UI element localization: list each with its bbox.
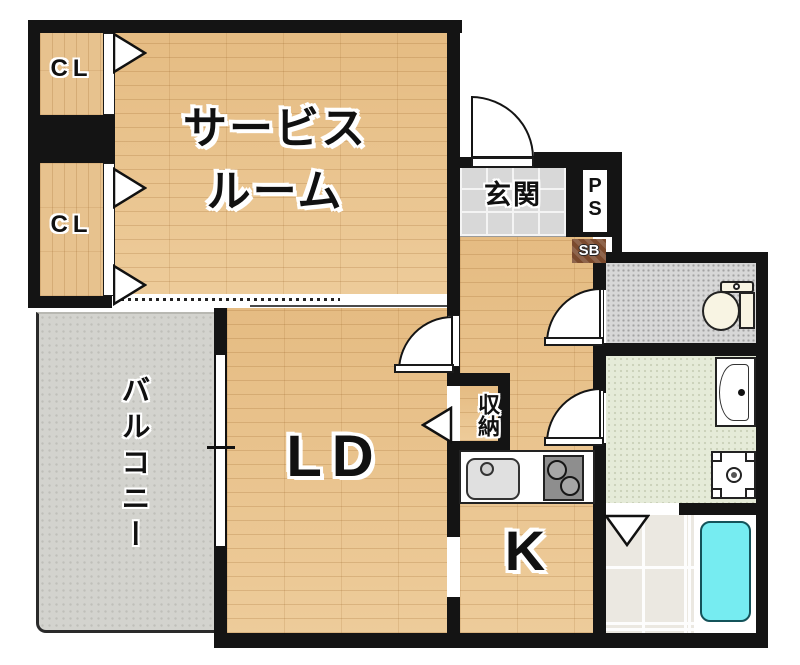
pipe-space-label-s: S (583, 198, 607, 221)
ld-label: LD (250, 425, 420, 489)
bathroom-door-triangle-icon (604, 514, 650, 548)
wall-hall-east-1 (593, 263, 606, 290)
kitchen-faucet-icon (480, 462, 494, 476)
pipe-space-label-p: P (583, 175, 607, 198)
kitchen-label: K (465, 520, 585, 582)
closet-top-label: CL (40, 56, 103, 82)
bathtub (700, 521, 751, 622)
partition-solid-line (250, 305, 447, 307)
wall-closet-cap (28, 296, 112, 308)
closet-bottom-label: CL (40, 212, 103, 238)
partition-dashed-line (114, 298, 340, 301)
ld-kitchen-opening (447, 537, 460, 597)
balcony-window-center-tick (207, 446, 235, 449)
room-service-floor (112, 33, 447, 296)
washer-corner (711, 488, 722, 499)
closet-door-triangle-icon (113, 32, 147, 74)
toilet-bowl (702, 291, 740, 331)
washer-corner (745, 488, 756, 499)
wall-toilet-north (606, 252, 768, 263)
entrance-door-sill (471, 157, 534, 168)
stove-burner-icon (560, 476, 580, 496)
wall-hall-east-2 (593, 343, 606, 393)
wall-between-closets (40, 115, 115, 163)
wall-left (28, 20, 40, 308)
balcony-window (214, 355, 227, 546)
toilet-door-open-leaf (544, 337, 604, 346)
toilet-tank (739, 292, 755, 329)
washroom-door-open-leaf (544, 437, 604, 446)
pipe-space-box: P S (578, 165, 612, 237)
service-room-label-line1: サービス (140, 105, 410, 153)
wall-ld-balcony-lower (214, 546, 227, 633)
wall-ld-balcony-upper (214, 308, 227, 355)
entrance-label: 玄関 (460, 181, 566, 211)
washer-corner (745, 451, 756, 462)
wall-bottom (214, 633, 768, 648)
wall-toilet-south (593, 343, 768, 356)
storage-door-triangle-icon (421, 406, 453, 444)
vanity-faucet-icon (738, 389, 745, 396)
wall-entrance-stub (460, 157, 471, 168)
shoe-box-label: SB (579, 242, 600, 259)
washer-corner (711, 451, 722, 462)
floor-plan: P S SB CL CL サービス ルーム 玄関 LD K 収納 バルコニー (0, 0, 800, 665)
wall-top (28, 20, 462, 33)
wall-genkan-ps (566, 152, 578, 237)
entrance-door-arc (471, 96, 534, 158)
wall-east-outer (756, 252, 768, 648)
balcony-label: バルコニー (92, 345, 148, 585)
ld-door-open-leaf (394, 364, 454, 373)
washer-drain-dot (731, 472, 737, 478)
wall-ps-right (612, 152, 622, 263)
shoe-box: SB (572, 239, 606, 263)
wall-ld-kitchen-lower (447, 597, 460, 633)
kitchen-sink (466, 458, 520, 500)
storage-label: 収納 (459, 387, 499, 443)
closet-door-triangle-icon (113, 264, 147, 306)
toilet-knob-icon (733, 283, 740, 290)
wall-service-hall (447, 20, 460, 315)
service-room-label-line2: ルーム (140, 168, 410, 216)
